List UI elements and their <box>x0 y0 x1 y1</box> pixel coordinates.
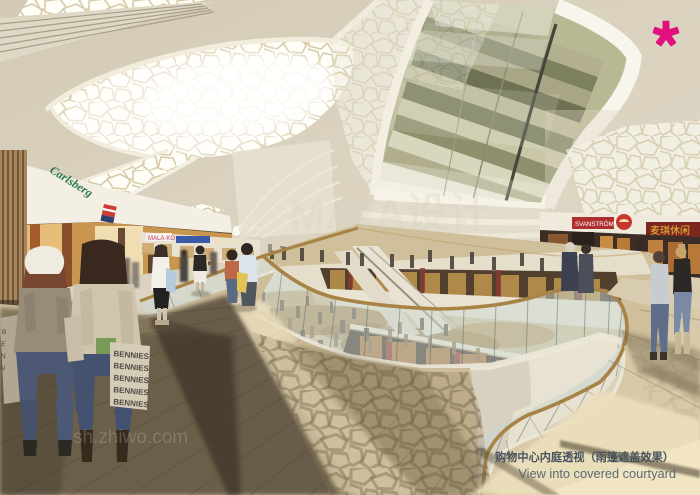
svg-text:MALA·KO: MALA·KO <box>148 236 175 242</box>
svg-text:E: E <box>1 341 6 348</box>
svg-text:View into covered courtyard: View into covered courtyard <box>518 466 676 481</box>
svg-text:N: N <box>0 365 5 372</box>
svg-text:购物中心内庭透视（雨篷遮盖效果）: 购物中心内庭透视（雨篷遮盖效果） <box>495 450 674 464</box>
svg-text:sh.zhiwo.com: sh.zhiwo.com <box>73 427 188 448</box>
svg-text:SVANSTRÖMS: SVANSTRÖMS <box>575 221 618 228</box>
svg-text:麦琪休闲: 麦琪休闲 <box>650 224 690 237</box>
svg-text:N: N <box>0 353 5 360</box>
svg-text:B: B <box>2 329 7 336</box>
svg-text:MAYA设计: MAYA设计 <box>289 189 490 239</box>
